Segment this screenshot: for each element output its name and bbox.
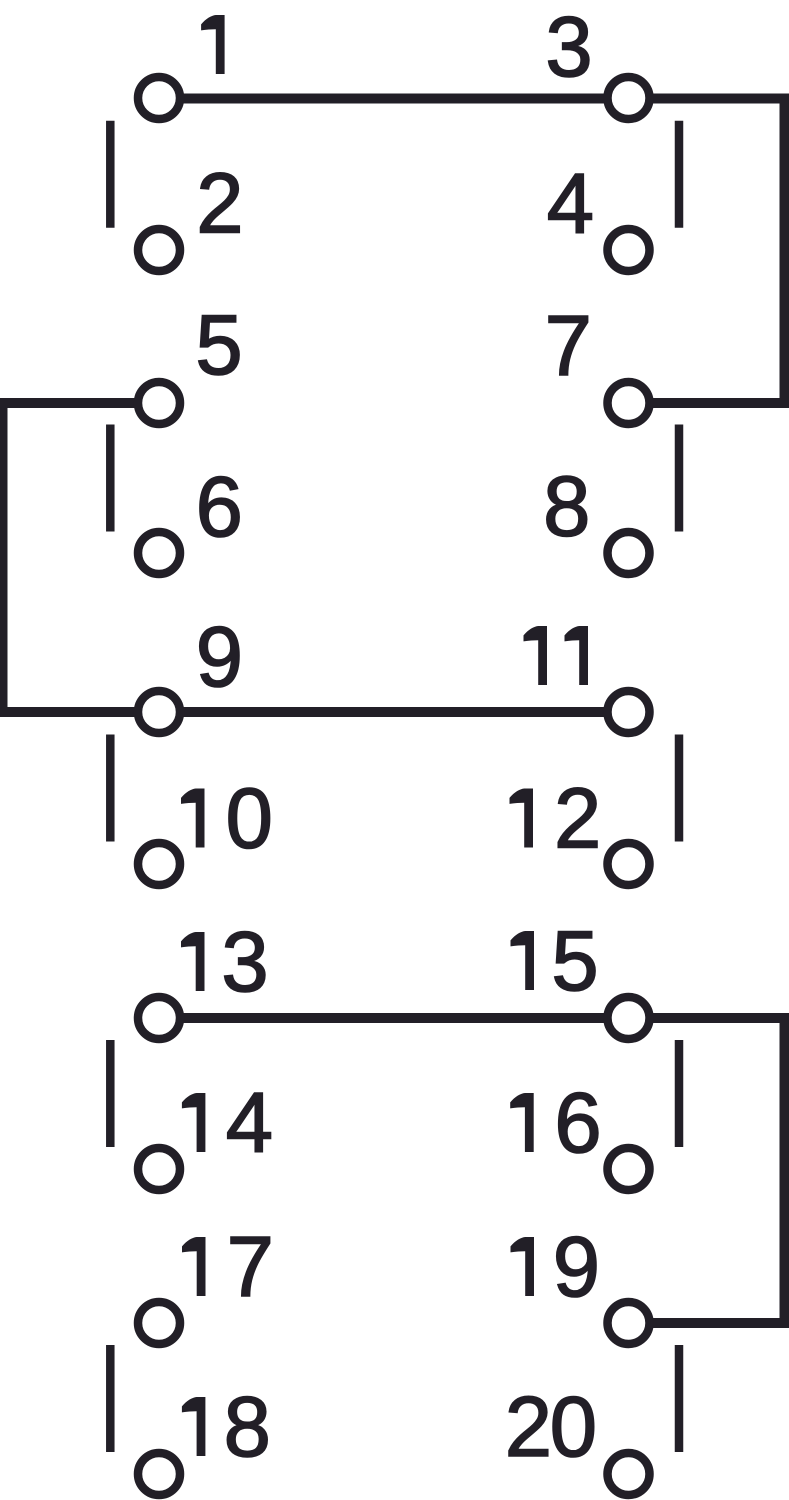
svg-text:6: 6 xyxy=(196,460,243,555)
svg-text:4: 4 xyxy=(547,157,594,252)
svg-text:9: 9 xyxy=(553,1220,600,1315)
svg-text:6: 6 xyxy=(554,1076,601,1171)
svg-text:4: 4 xyxy=(226,1076,273,1171)
svg-text:0: 0 xyxy=(550,1380,597,1475)
svg-text:5: 5 xyxy=(551,914,598,1009)
svg-text:9: 9 xyxy=(196,610,243,705)
svg-text:8: 8 xyxy=(543,460,590,555)
svg-text:2: 2 xyxy=(505,1380,552,1475)
svg-text:7: 7 xyxy=(545,299,592,394)
svg-text:3: 3 xyxy=(545,0,592,95)
svg-text:7: 7 xyxy=(227,1220,274,1315)
svg-text:8: 8 xyxy=(224,1380,271,1475)
svg-text:2: 2 xyxy=(196,157,243,252)
svg-text:0: 0 xyxy=(226,772,273,867)
svg-text:3: 3 xyxy=(221,915,268,1010)
svg-text:5: 5 xyxy=(195,298,242,393)
svg-text:2: 2 xyxy=(554,772,601,867)
